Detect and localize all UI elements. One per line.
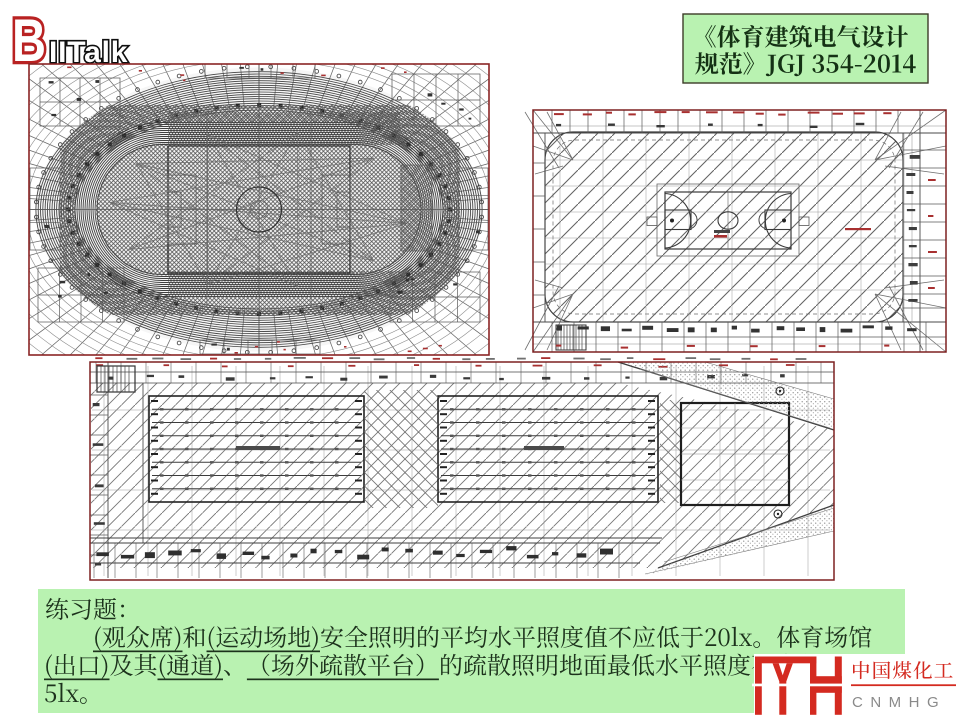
svg-text:CNMHG: CNMHG	[852, 694, 946, 711]
